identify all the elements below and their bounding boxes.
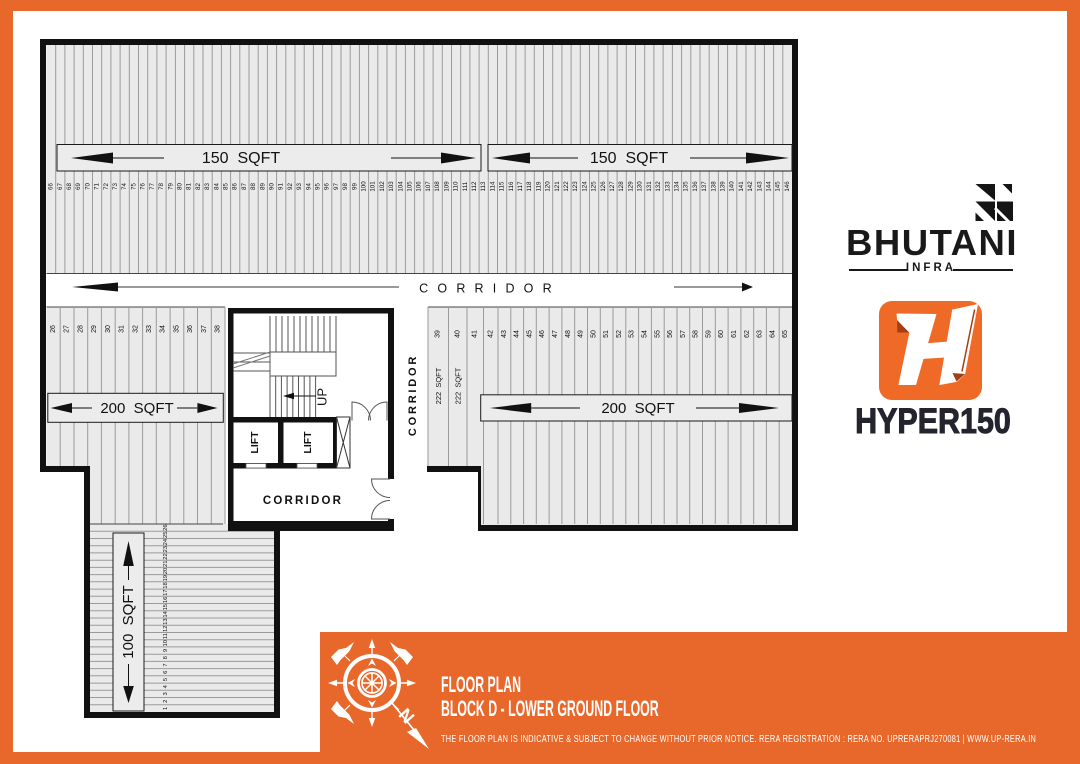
svg-text:N: N [395, 704, 419, 727]
